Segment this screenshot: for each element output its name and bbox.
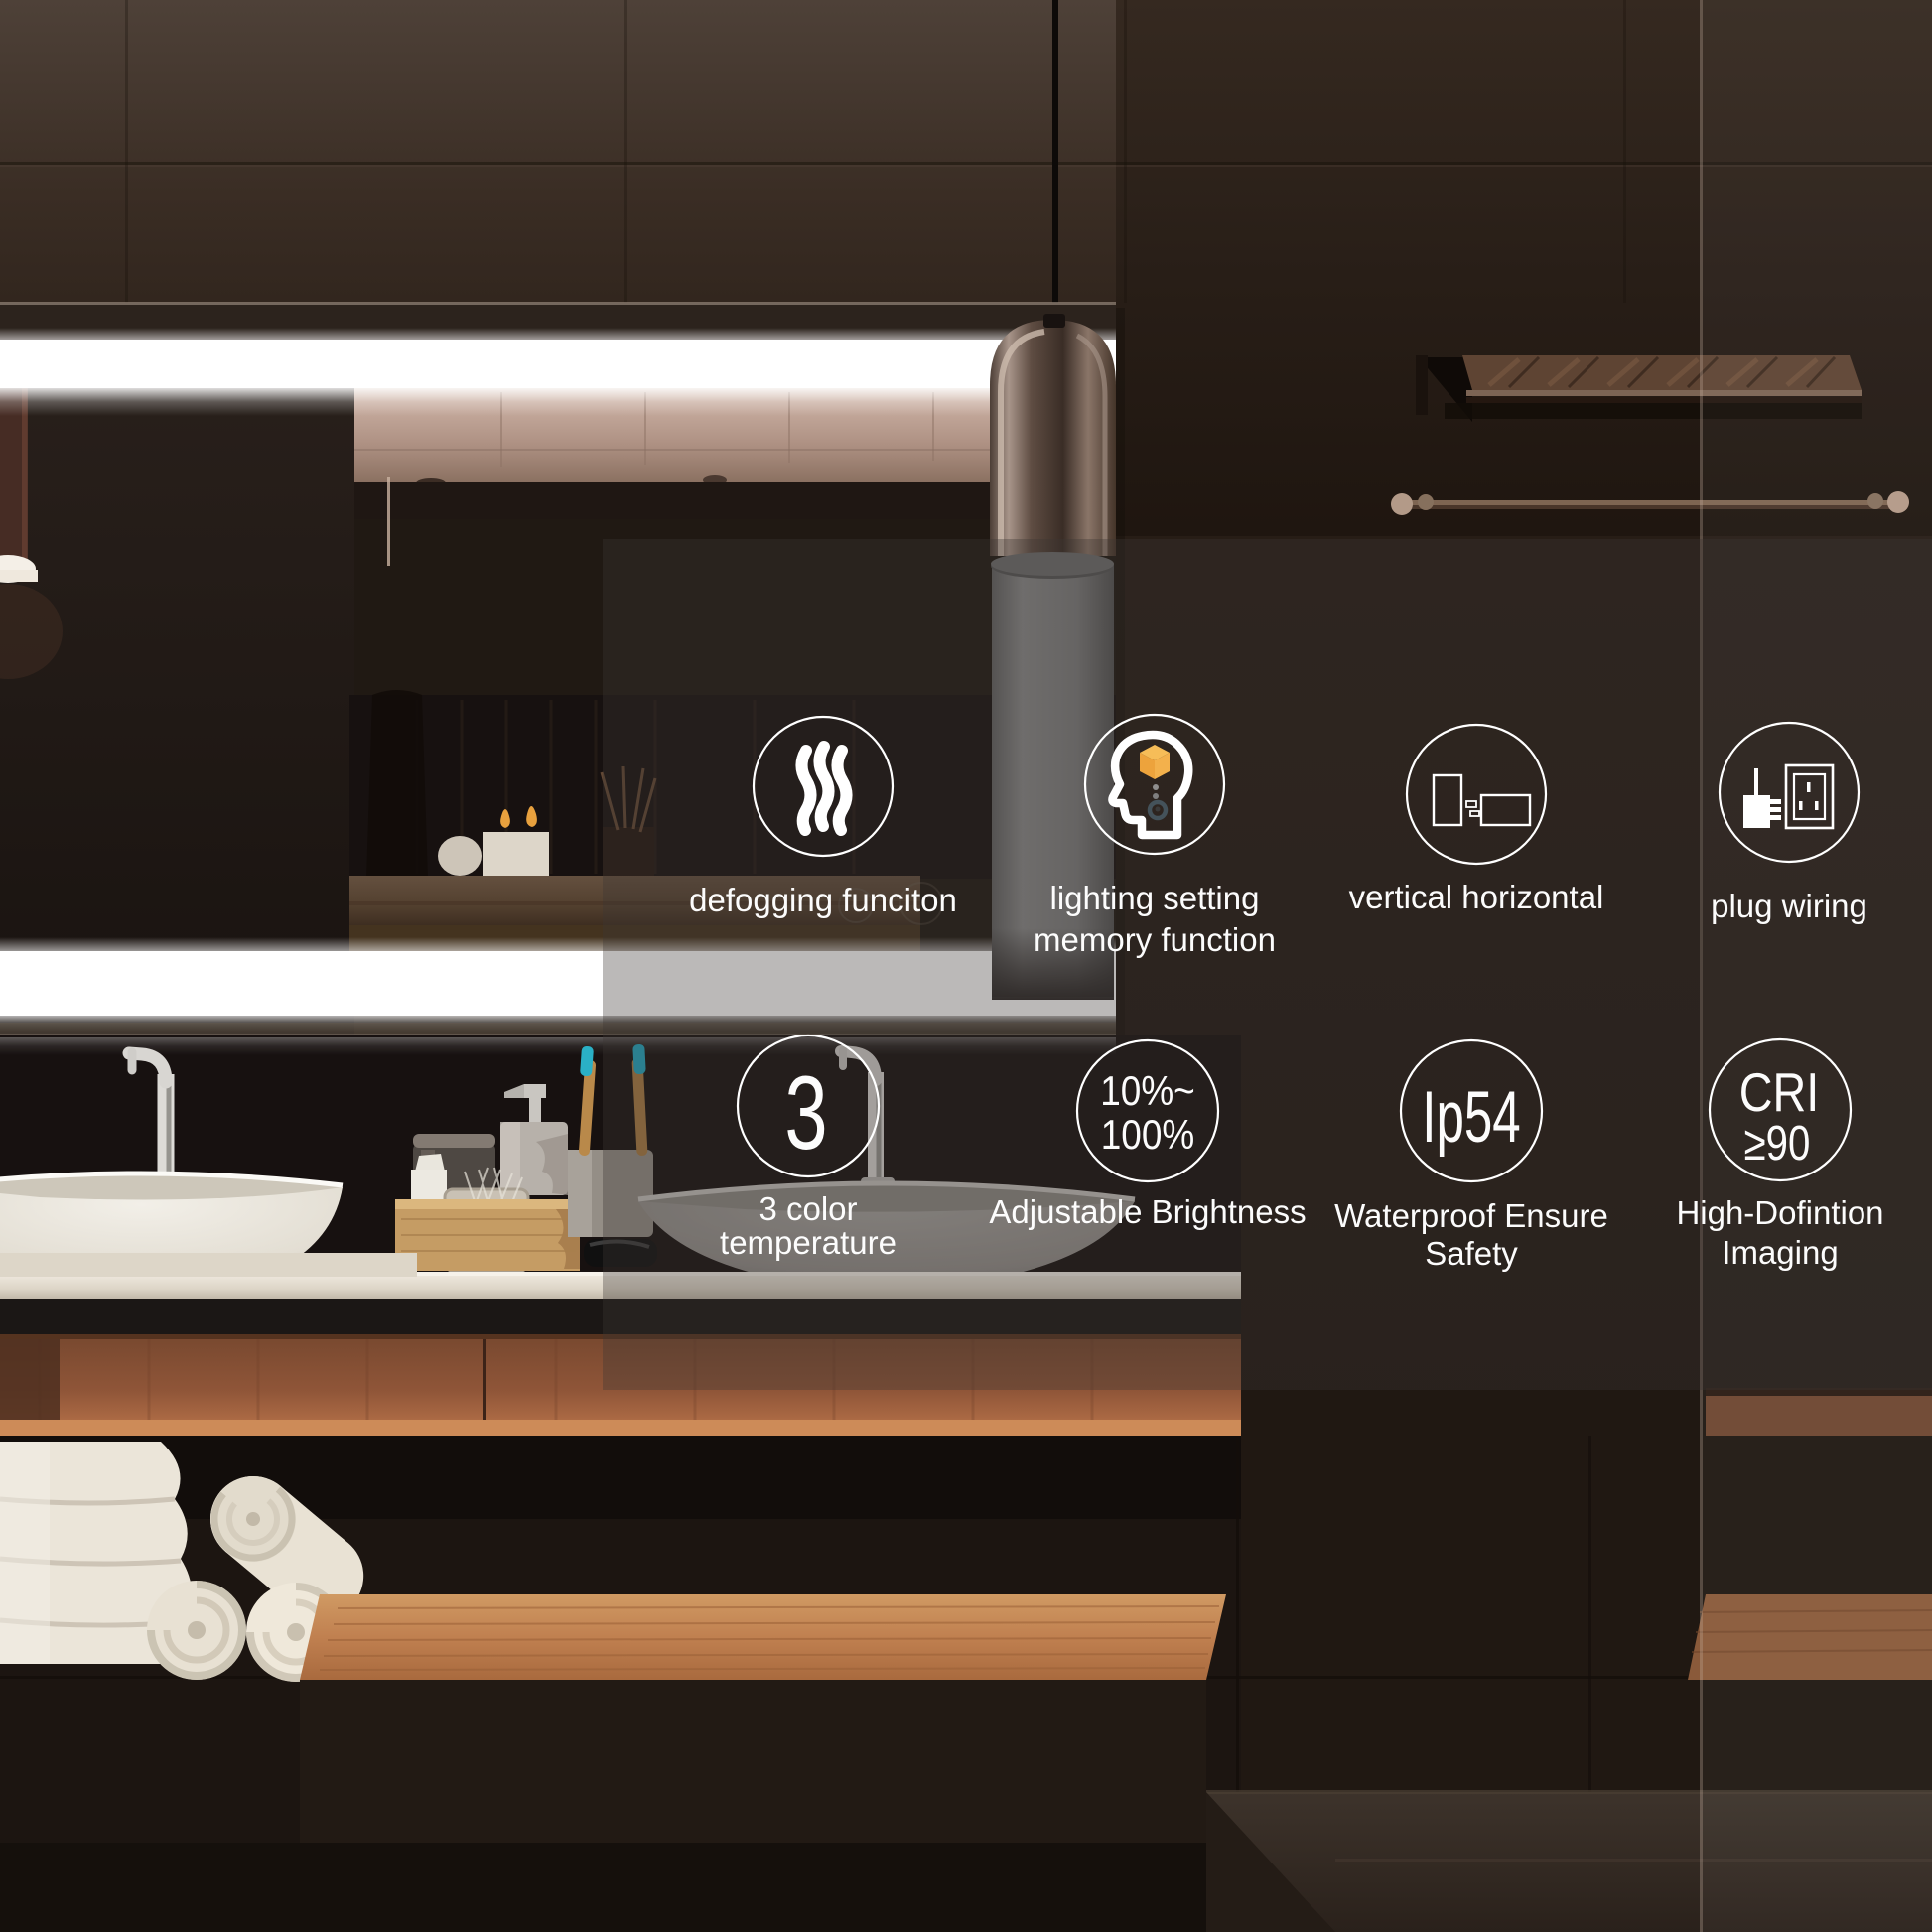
svg-text:memory function: memory function bbox=[1034, 921, 1276, 958]
svg-text:3 color: 3 color bbox=[759, 1190, 857, 1227]
svg-text:defogging funciton: defogging funciton bbox=[689, 882, 957, 918]
svg-text:temperature: temperature bbox=[720, 1224, 897, 1261]
svg-text:Ip54: Ip54 bbox=[1422, 1077, 1520, 1158]
svg-text:Adjustable Brightness: Adjustable Brightness bbox=[989, 1193, 1306, 1230]
svg-text:Waterproof Ensure: Waterproof Ensure bbox=[1334, 1197, 1608, 1234]
svg-text:Safety: Safety bbox=[1425, 1235, 1518, 1272]
svg-text:Imaging: Imaging bbox=[1722, 1234, 1838, 1271]
svg-text:lighting setting: lighting setting bbox=[1050, 880, 1260, 916]
svg-text:plug wiring: plug wiring bbox=[1711, 888, 1867, 924]
svg-text:≥90: ≥90 bbox=[1744, 1116, 1811, 1171]
svg-text:100%: 100% bbox=[1101, 1112, 1195, 1159]
svg-text:High-Dofintion: High-Dofintion bbox=[1676, 1194, 1883, 1231]
svg-text:3: 3 bbox=[784, 1054, 827, 1172]
svg-text:vertical horizontal: vertical horizontal bbox=[1349, 879, 1604, 915]
svg-text:10%~: 10%~ bbox=[1100, 1068, 1195, 1115]
svg-text:CRI: CRI bbox=[1739, 1061, 1820, 1122]
